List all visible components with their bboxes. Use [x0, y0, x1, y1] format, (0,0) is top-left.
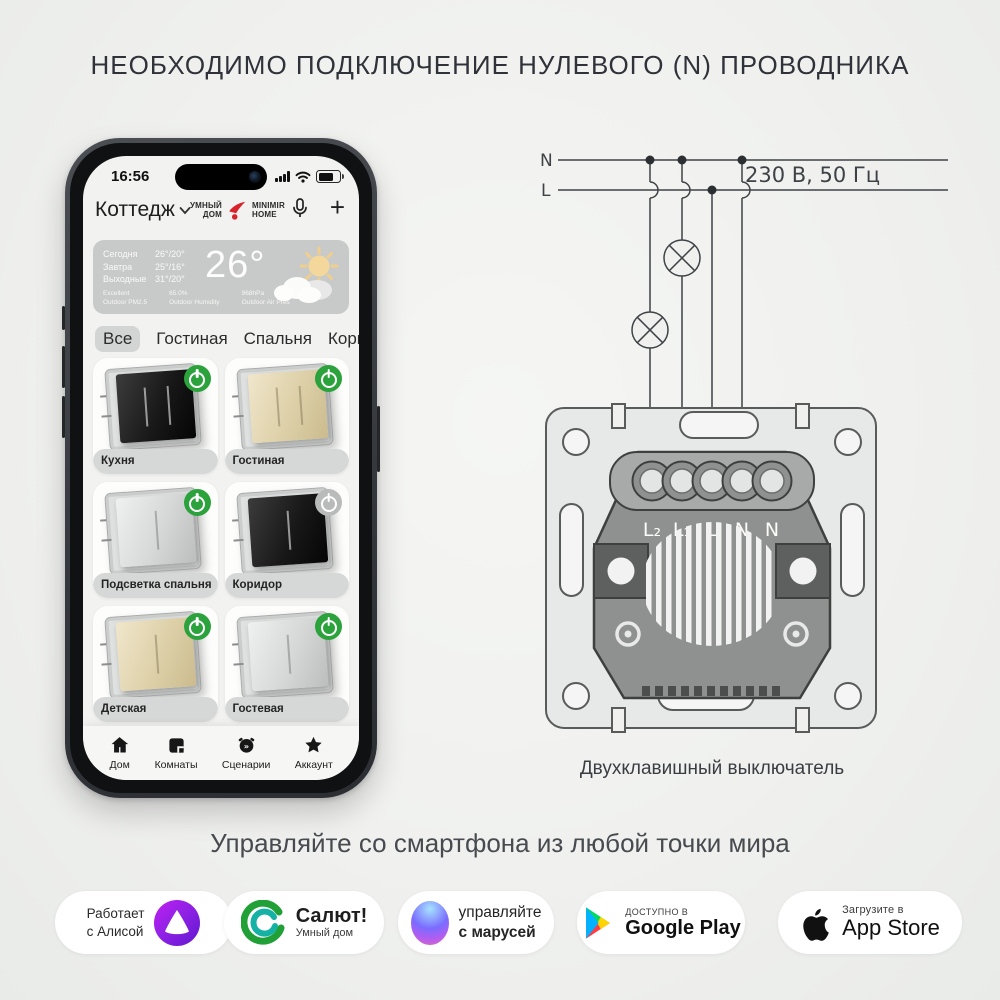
current-temperature: 26°	[205, 244, 265, 287]
device-card[interactable]: Подсветка спальня	[93, 482, 218, 598]
device-name: Коридор	[225, 573, 350, 598]
salut-badge[interactable]: Салют! Умный дом	[224, 891, 384, 954]
home-selector[interactable]: Коттедж	[95, 198, 191, 222]
svg-text:»: »	[243, 741, 248, 751]
google-play-icon	[581, 905, 615, 941]
room-tab[interactable]: Гостиная	[156, 329, 227, 349]
power-toggle[interactable]	[184, 365, 211, 392]
microphone-icon[interactable]	[289, 197, 311, 221]
wifi-icon	[295, 171, 311, 183]
alisa-badge[interactable]: Работаетс Алисой	[55, 891, 232, 954]
power-toggle[interactable]	[184, 613, 211, 640]
alisa-icon	[154, 900, 200, 946]
google-play-badge[interactable]: ДОСТУПНО В Google Play	[577, 891, 745, 954]
salut-icon	[241, 900, 287, 946]
volume-down-button	[62, 396, 65, 438]
brand-mark-icon	[226, 199, 248, 221]
marusya-icon	[411, 901, 449, 945]
add-device-button[interactable]: +	[330, 194, 345, 220]
weather-widget[interactable]: Сегодня26°/20°Завтра25°/16°Выходные31°/2…	[93, 240, 349, 314]
device-card[interactable]: Гостиная	[225, 358, 350, 474]
room-tabs: ВсеГостинаяСпальняКоридор	[95, 326, 359, 352]
device-name: Детская	[93, 697, 218, 722]
device-card[interactable]: Гостевая	[225, 606, 350, 722]
battery-icon	[316, 170, 341, 183]
power-toggle[interactable]	[315, 613, 342, 640]
terminal-label: L₂	[643, 519, 661, 541]
mute-switch	[62, 306, 65, 330]
weather-stats: ExcellentOutdoor PM2.565.0%Outdoor Humid…	[103, 290, 290, 307]
power-toggle[interactable]	[184, 489, 211, 516]
phone-screen: 16:56 Коттедж УМНЫЙДОМ	[83, 156, 359, 780]
sun-clouds-icon	[267, 243, 343, 307]
tagline: Управляйте со смартфона из любой точки м…	[0, 828, 1000, 859]
diagram-caption: Двухклавишный выключатель	[532, 758, 892, 780]
app-store-badge[interactable]: Загрузите в App Store	[778, 891, 962, 954]
nav-item-rooms[interactable]: Комнаты	[155, 736, 198, 771]
device-name: Гостиная	[225, 449, 350, 474]
promo-canvas: НЕОБХОДИМО ПОДКЛЮЧЕНИЕ НУЛЕВОГО (N) ПРОВ…	[0, 0, 1000, 1000]
bottom-nav: ДомКомнаты»СценарииАккаунт	[83, 726, 359, 780]
signal-icon	[275, 171, 290, 182]
n-line-label: N	[540, 151, 553, 171]
brand-logo: УМНЫЙДОМ MINIMIRHOME	[190, 199, 285, 221]
scenarios-icon: »	[236, 735, 257, 758]
home-icon	[109, 735, 130, 758]
status-time: 16:56	[111, 168, 149, 185]
nav-item-home[interactable]: Дом	[109, 735, 130, 771]
device-name: Подсветка спальня	[93, 573, 218, 598]
apple-icon	[800, 904, 832, 942]
camera-icon	[249, 171, 261, 183]
device-card[interactable]: Коридор	[225, 482, 350, 598]
volume-up-button	[62, 346, 65, 388]
account-icon	[303, 735, 324, 758]
device-card[interactable]: Кухня	[93, 358, 218, 474]
terminal-label: N	[765, 519, 779, 541]
phone-bezel: 16:56 Коттедж УМНЫЙДОМ	[70, 143, 372, 793]
l-line-label: L	[541, 181, 551, 201]
device-name: Гостевая	[225, 697, 350, 722]
room-tab[interactable]: Коридор	[328, 329, 359, 349]
device-name: Кухня	[93, 449, 218, 474]
power-toggle[interactable]	[315, 365, 342, 392]
dynamic-island	[175, 164, 267, 190]
device-card[interactable]: Детская	[93, 606, 218, 722]
nav-item-scenarios[interactable]: »Сценарии	[222, 735, 271, 771]
power-button-hw	[377, 406, 380, 472]
marusya-badge[interactable]: управляйтес марусей	[398, 891, 554, 954]
room-tab[interactable]: Спальня	[244, 329, 312, 349]
voltage-label: 230 В, 50 Гц	[745, 163, 880, 187]
nav-item-account[interactable]: Аккаунт	[295, 735, 333, 771]
room-tab[interactable]: Все	[95, 326, 140, 352]
weather-forecast: Сегодня26°/20°Завтра25°/16°Выходные31°/2…	[103, 248, 185, 286]
power-toggle[interactable]	[315, 489, 342, 516]
device-grid: Кухня Гостиная Подсветка спальня Коридор…	[93, 358, 349, 756]
page-title: НЕОБХОДИМО ПОДКЛЮЧЕНИЕ НУЛЕВОГО (N) ПРОВ…	[0, 50, 1000, 81]
smartphone-mockup: 16:56 Коттедж УМНЫЙДОМ	[65, 138, 377, 798]
rooms-icon	[167, 736, 186, 758]
switch-mechanism-drawing: L₂L₁LNN	[532, 396, 892, 740]
